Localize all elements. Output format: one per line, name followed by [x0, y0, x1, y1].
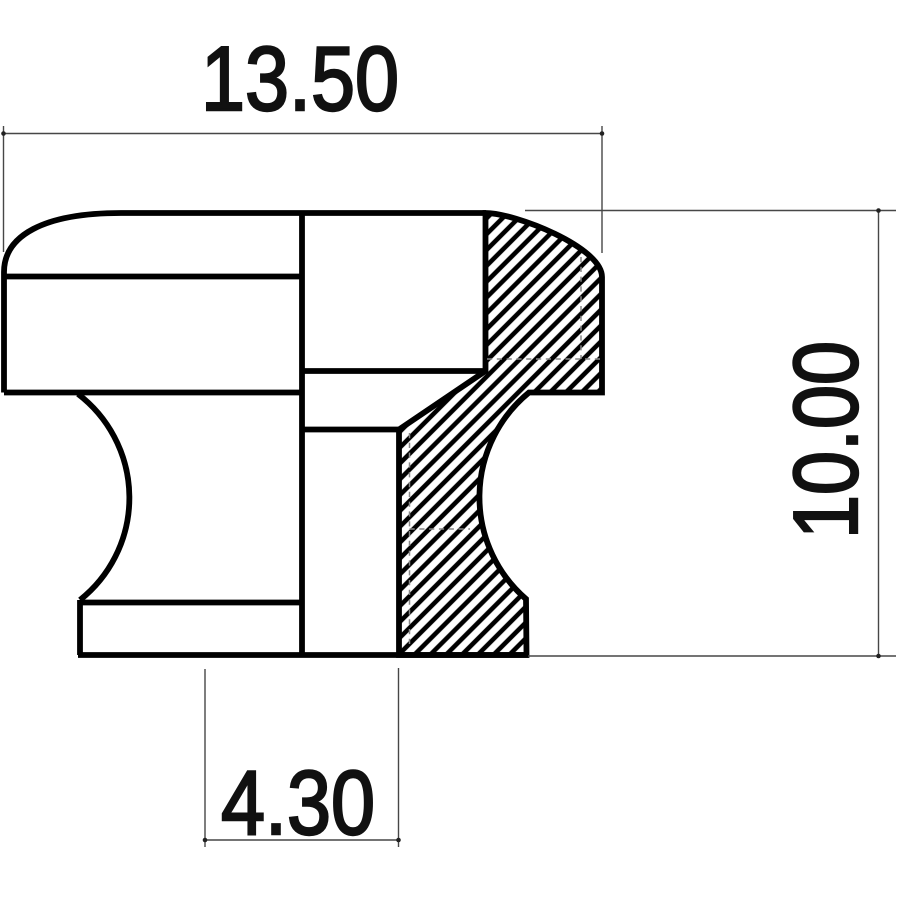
svg-text:10.00: 10.00: [776, 341, 877, 539]
svg-text:4.30: 4.30: [221, 753, 375, 854]
svg-text:13.50: 13.50: [201, 29, 399, 130]
